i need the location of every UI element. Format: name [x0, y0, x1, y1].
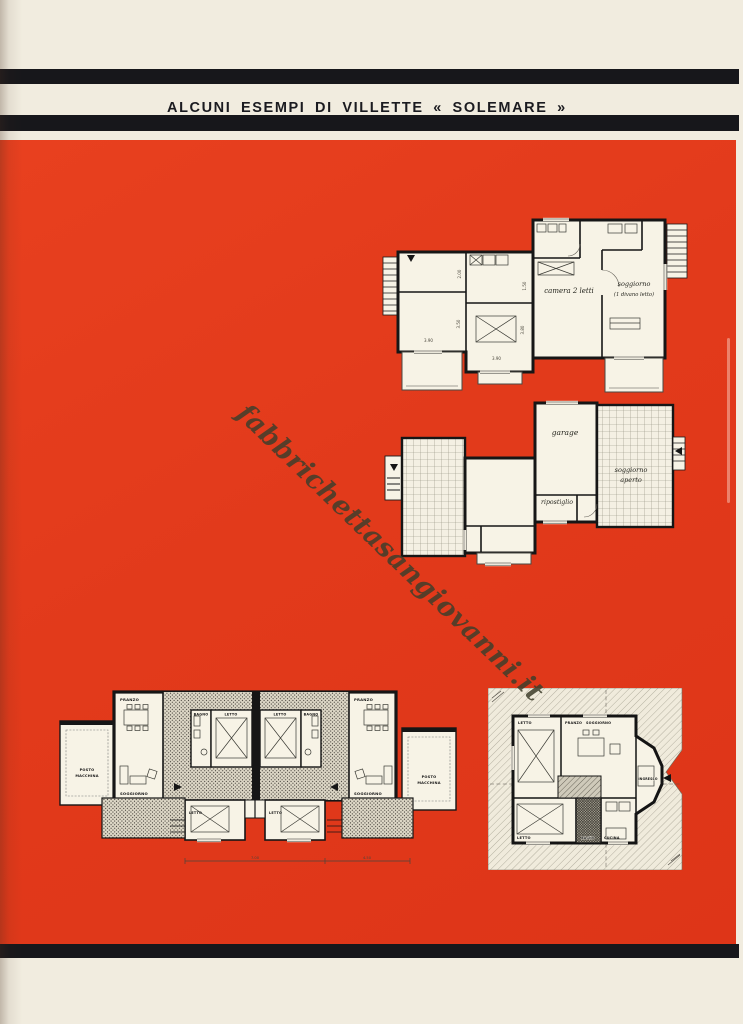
label-posto-left-1: POSTO [80, 768, 95, 772]
top-black-bar [0, 69, 739, 84]
terrace-left-grid [402, 438, 465, 556]
dim-350: 3.50 [456, 319, 461, 328]
label-garage: garage [552, 428, 579, 437]
entry-steps-right [673, 437, 685, 470]
middle-unit-outline [465, 458, 535, 553]
balcony-right [605, 358, 663, 392]
dim-390b: 3.90 [492, 356, 501, 361]
label-letto-bottom-right: LETTO [269, 811, 282, 815]
stairs-right [667, 224, 687, 278]
label-divano-letto: (1 divano letto) [614, 291, 654, 298]
stairs-left [383, 257, 398, 315]
carport-left [60, 721, 114, 805]
page-title: ALCUNI ESEMPI DI VILLETTE « SOLEMARE » [167, 100, 567, 116]
label-soggiorno-aperto-1: soggiorno [615, 466, 648, 474]
bottom-rooms [185, 800, 325, 842]
label-letto-right: LETTO [273, 713, 286, 717]
label-ripostiglio: ripostiglio [541, 499, 573, 506]
closet-hatch [558, 776, 601, 798]
label-soggiorno: soggiorno [618, 280, 651, 288]
dim-150: 1.50 [522, 281, 527, 290]
label-posto-left-2: MACCHINA [75, 774, 98, 778]
dim-700: 7.00 [251, 856, 260, 860]
label-letto-left: LETTO [224, 713, 237, 717]
label-posto-right-2: MACCHINA [417, 781, 440, 785]
label-bagno-left: BAGNO [194, 713, 209, 717]
dim-450: 4.50 [363, 856, 372, 860]
plan-ground-floor: garage ripostiglio soggiorno aperto [378, 396, 686, 574]
plan-duplex: PRANZO SOGGIORNO BAGNO LETTO LETTO BAGNO… [58, 678, 458, 883]
label-soggiorno: SOGGIORNO [586, 721, 611, 725]
label-ingresso: INGRESSO [638, 777, 657, 781]
label-soggiorno-right: SOGGIORNO [354, 791, 383, 796]
title-underline-bar [0, 115, 739, 131]
dim-380: 3.80 [520, 325, 525, 334]
plan-square-villa: LETTO PRANZO SOGGIORNO INGRESSO LETTO BA… [488, 688, 684, 870]
dim-200: 2.00 [457, 269, 462, 278]
label-soggiorno-left: SOGGIORNO [120, 791, 149, 796]
party-wall [252, 692, 260, 800]
entry-porch-left [385, 456, 402, 500]
label-letto-bottom: LETTO [517, 836, 531, 840]
label-pranzo: PRANZO [565, 721, 582, 725]
label-cucina: CUCINA [604, 836, 620, 840]
scan-scratch [727, 338, 730, 503]
label-pranzo-left: PRANZO [120, 697, 140, 702]
dimension-line [185, 858, 410, 864]
label-pranzo-right: PRANZO [354, 697, 374, 702]
label-bagno: BAGNO [581, 836, 595, 840]
label-bagno-right: BAGNO [304, 713, 319, 717]
label-letto-top: LETTO [518, 721, 532, 725]
label-letto-bottom-left: LETTO [189, 811, 202, 815]
label-posto-right-1: POSTO [422, 775, 437, 779]
bottom-black-bar [0, 944, 739, 958]
label-camera-2-letti: camera 2 letti [544, 287, 594, 295]
label-soggiorno-aperto-2: aperto [620, 476, 642, 484]
plan-upper-floor: 2.00 1.50 3.50 3.90 3.80 3.90 camera 2 l… [380, 200, 690, 400]
dim-390a: 3.90 [424, 338, 433, 343]
